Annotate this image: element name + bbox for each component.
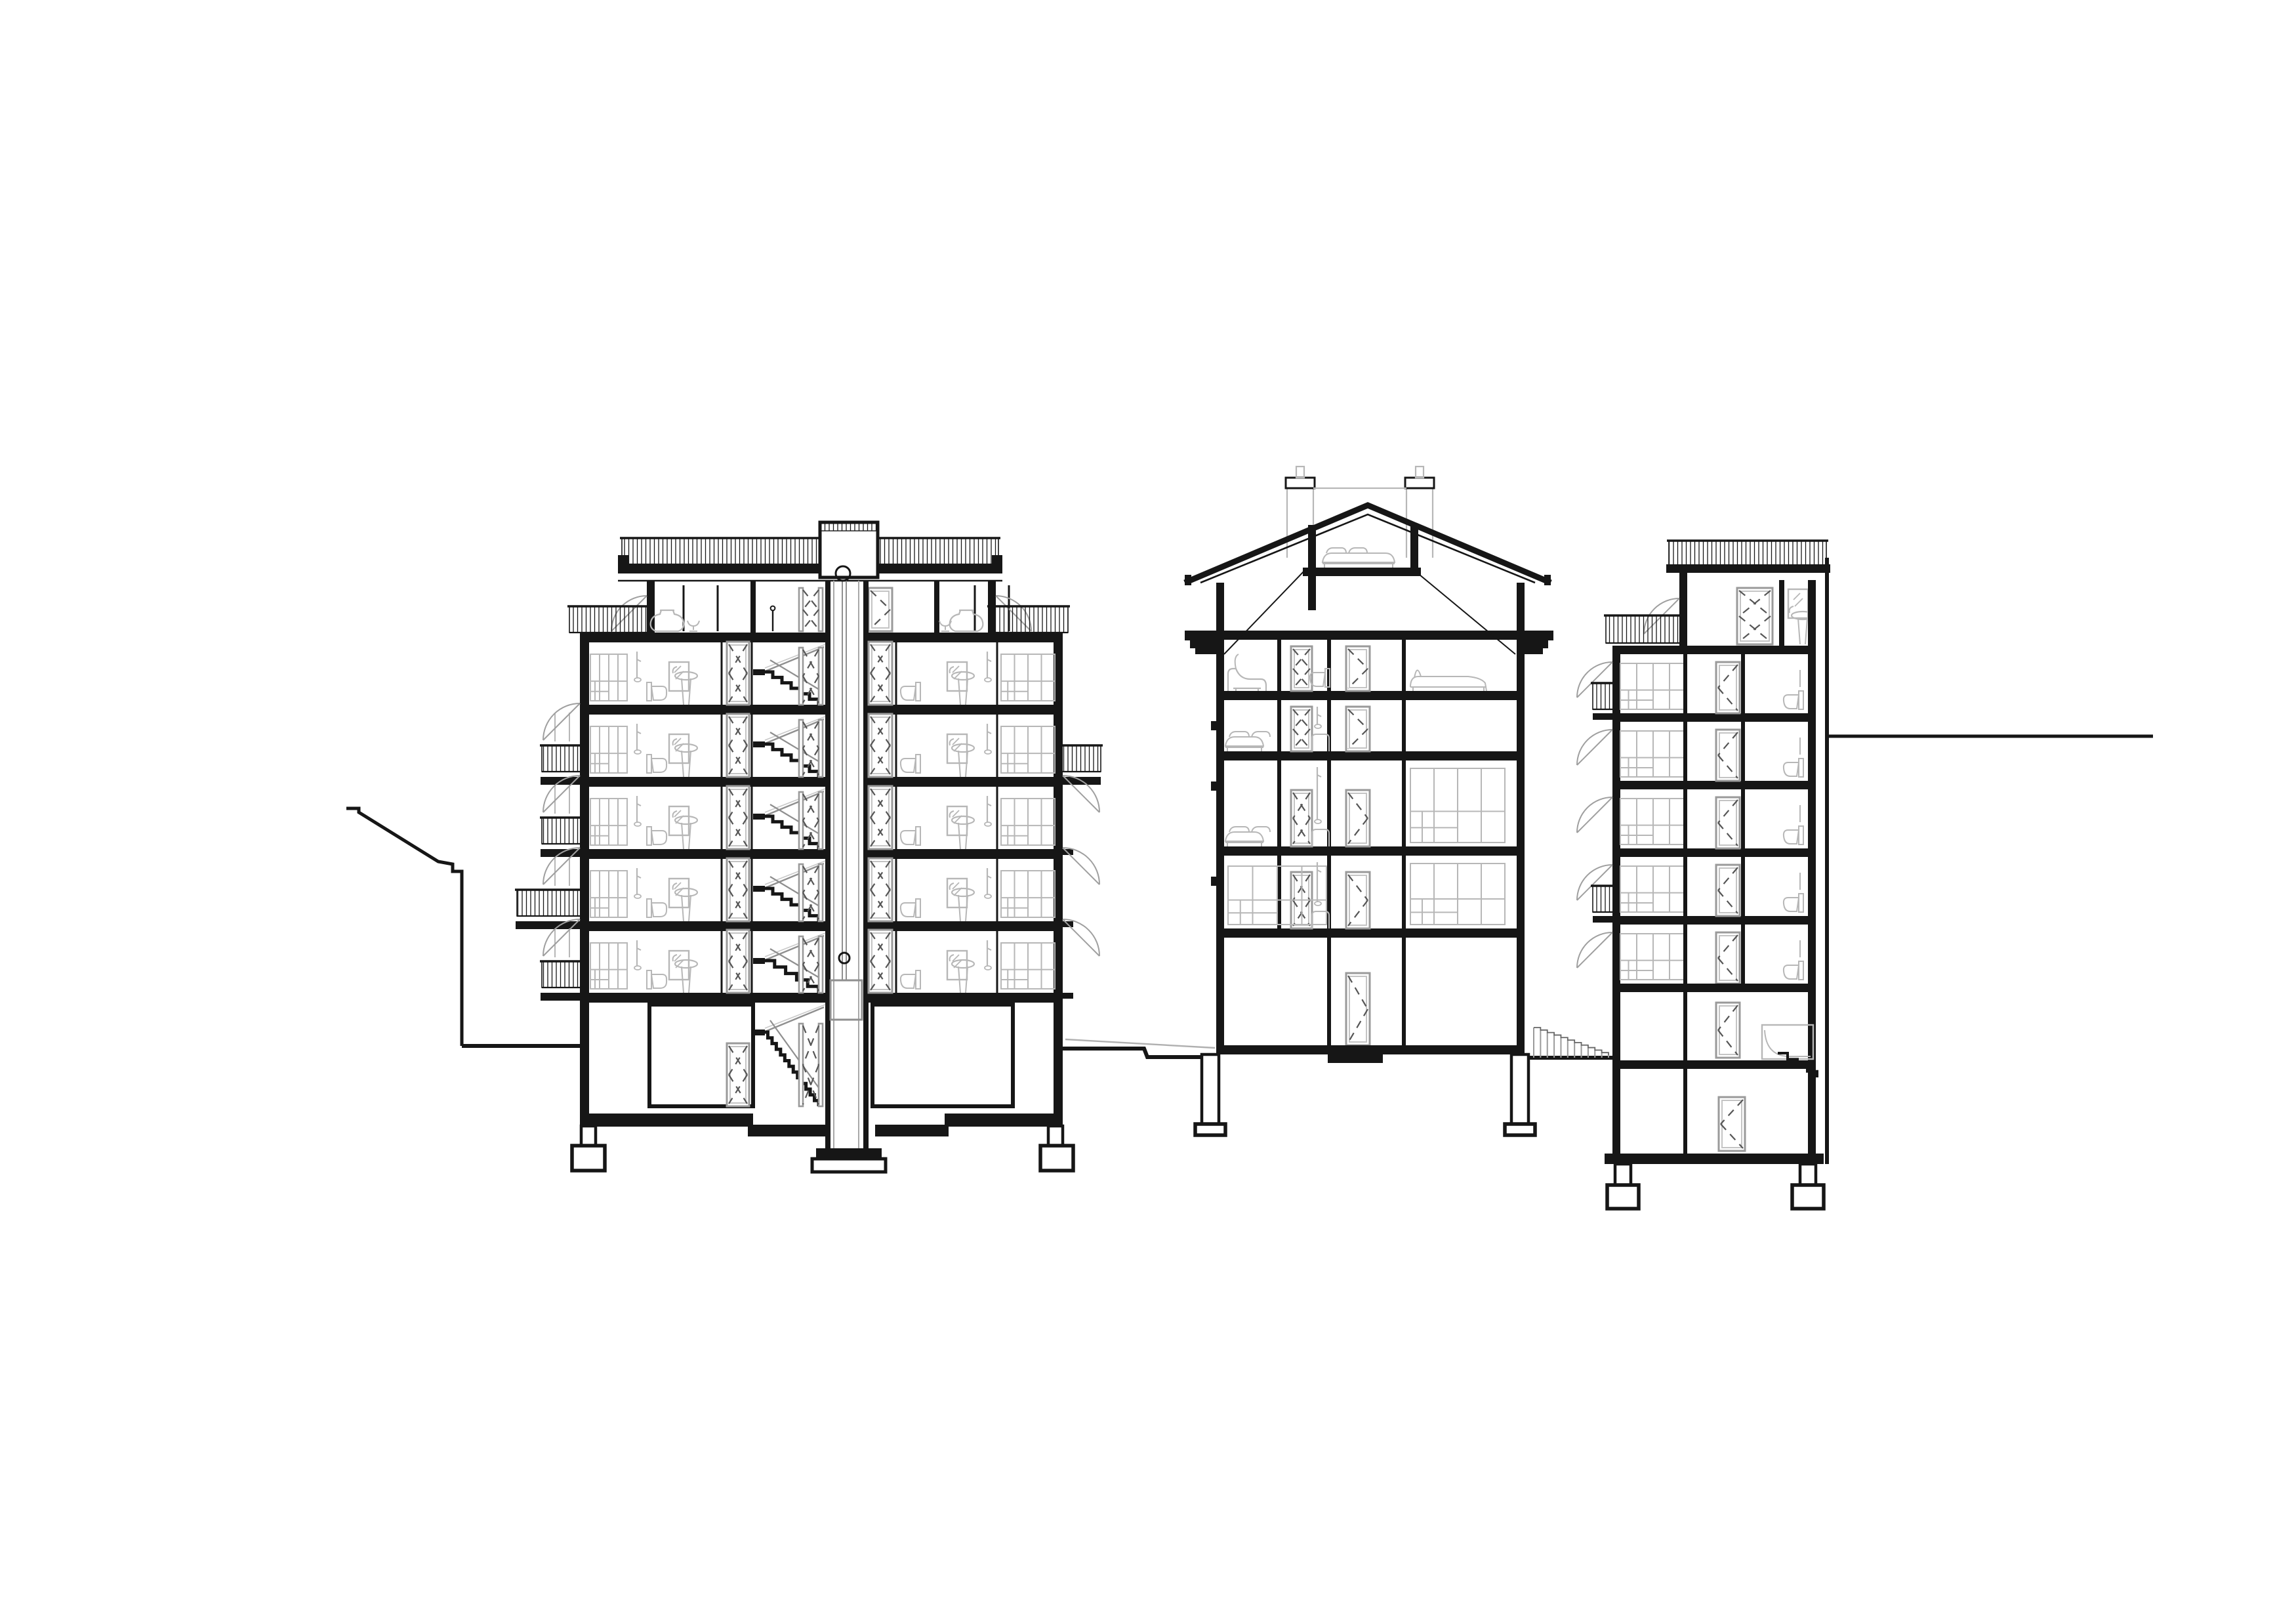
foundation-footing <box>572 1126 605 1171</box>
wardrobe-grid <box>1410 768 1505 843</box>
shower <box>1315 707 1321 728</box>
mirror <box>947 879 967 907</box>
wardrobe-grid <box>1001 726 1055 773</box>
apartment-door <box>869 930 892 993</box>
toilet <box>647 970 666 989</box>
armchair <box>1228 654 1266 691</box>
stair-flight <box>753 717 825 777</box>
wardrobe-grid <box>1001 654 1055 701</box>
wardrobe-grid <box>590 799 627 845</box>
wardrobe-grid <box>590 943 627 989</box>
apartment-floor <box>1577 925 1803 984</box>
shower <box>634 940 641 970</box>
balcony-railing <box>1591 683 1617 709</box>
mirror <box>947 806 967 835</box>
apartment-door <box>869 714 892 777</box>
apartment-floor <box>1225 760 1505 846</box>
apartment-floor <box>1577 722 1803 781</box>
foundation-footing <box>1040 1126 1073 1171</box>
terrace-railing <box>987 606 1070 633</box>
pedestal-sink <box>673 739 697 777</box>
balcony-railing <box>540 961 584 988</box>
apartment-door <box>869 642 892 705</box>
foundation-footing <box>1792 1164 1824 1209</box>
toilet <box>647 827 666 845</box>
architectural-section-svg <box>0 0 2296 1624</box>
hall-door <box>1346 872 1370 928</box>
bed <box>1322 548 1395 568</box>
apartment-floor <box>1224 568 1515 691</box>
stair-flight <box>753 933 825 993</box>
ground-floor <box>572 1005 1073 1171</box>
wardrobe-grid <box>590 871 627 917</box>
shower <box>634 796 641 826</box>
shower <box>985 796 991 826</box>
balcony-door-swing <box>1577 797 1612 833</box>
stair-flight <box>753 644 825 705</box>
left-building-section <box>515 522 1103 1172</box>
apartment-floor <box>1225 700 1406 751</box>
toilet <box>1784 894 1803 912</box>
roof-parapet <box>1666 541 1830 573</box>
section-drawing-canvas <box>0 0 2296 1624</box>
toilet <box>901 899 920 917</box>
mirror <box>1788 589 1808 618</box>
balcony-railing <box>515 890 584 916</box>
apartment-floor <box>590 930 1055 993</box>
balcony-left <box>1591 886 1617 923</box>
apartment-door <box>727 642 749 705</box>
vase-jug <box>651 610 684 631</box>
window-wardrobe-grid <box>1620 866 1686 912</box>
shower <box>985 652 991 682</box>
foundation-footing <box>1505 1054 1535 1135</box>
balcony-railing <box>1591 886 1617 912</box>
apartment-floor <box>590 714 1055 777</box>
stair-flight <box>753 789 825 849</box>
apartment-door <box>727 858 749 921</box>
hall-door <box>1716 932 1740 984</box>
window-wardrobe-grid <box>1620 731 1686 777</box>
entry-door <box>1346 973 1370 1045</box>
balcony-door-swing <box>1577 730 1612 765</box>
exterior-wall <box>1216 583 1224 1045</box>
toilet <box>901 755 920 773</box>
penthouse-door <box>869 588 892 631</box>
apartment-floor <box>590 786 1055 849</box>
wardrobe-grid <box>1410 864 1505 925</box>
toilet <box>901 827 920 845</box>
parapet-hatch <box>1667 541 1828 566</box>
floor-slabs <box>1612 646 1808 925</box>
cornice <box>1185 631 1216 654</box>
balcony-left <box>540 919 585 1001</box>
exterior-wall <box>1808 580 1816 1164</box>
bed <box>1225 732 1270 751</box>
bath-door <box>1291 790 1312 846</box>
wardrobe-grid <box>590 726 627 773</box>
apartment-door <box>727 786 749 849</box>
wardrobe-grid <box>1001 799 1055 845</box>
garden-level <box>1612 984 1817 1077</box>
hall-door <box>1346 707 1370 751</box>
foundation-footing <box>1607 1164 1639 1209</box>
basement-door <box>1719 1097 1745 1151</box>
elevator-cab <box>830 980 862 1020</box>
penthouse <box>611 581 1031 633</box>
lift-door-swing <box>799 588 823 631</box>
bath-door <box>1291 707 1312 751</box>
shower <box>985 940 991 970</box>
apartment-floor <box>1228 856 1505 928</box>
basement <box>1605 1069 1824 1209</box>
chimney-right <box>1405 467 1434 558</box>
hall-door <box>1346 646 1370 691</box>
hall-door <box>1716 730 1740 781</box>
apartment-door <box>869 858 892 921</box>
lift-door-swing <box>799 936 823 993</box>
garden-door <box>1716 1003 1740 1058</box>
shower <box>1315 767 1321 823</box>
balcony-left <box>515 848 585 929</box>
apartment-floor <box>590 858 1055 921</box>
bed <box>1225 827 1270 846</box>
terrace-railing <box>567 606 650 633</box>
toilet <box>901 682 920 701</box>
wardrobe-grid <box>1001 943 1055 989</box>
middle-building-section <box>1185 467 1553 1135</box>
balcony-door-swing <box>1063 919 1099 956</box>
mirror <box>947 662 967 691</box>
roof-parapet <box>618 538 1002 581</box>
mirror <box>669 734 689 763</box>
shower <box>985 724 991 754</box>
balcony-door-swing <box>543 703 580 740</box>
pedestal-sink <box>673 883 697 921</box>
toilet <box>1784 691 1803 709</box>
right-building-section <box>1577 541 1830 1209</box>
hall-door <box>1716 797 1740 848</box>
balcony-railing <box>540 745 584 772</box>
sofa <box>1410 670 1486 691</box>
exterior-skin <box>1825 558 1829 1164</box>
foundation-footing <box>1195 1054 1225 1135</box>
balcony-left <box>1591 683 1617 720</box>
hall-door <box>1346 790 1370 846</box>
shower <box>634 868 641 898</box>
exterior-wall <box>580 633 589 1114</box>
mirror <box>669 879 689 907</box>
pedestal-sink <box>673 811 697 849</box>
toilet <box>1784 961 1803 980</box>
balcony-railing <box>540 818 584 844</box>
pedestal-sink <box>673 955 697 993</box>
toilet <box>901 970 920 989</box>
toilet <box>647 755 666 773</box>
hall-door <box>1716 865 1740 916</box>
shower <box>634 724 641 754</box>
apartment-door <box>727 714 749 777</box>
mirror <box>669 806 689 835</box>
apartment-door <box>869 786 892 849</box>
mirror <box>947 734 967 763</box>
entry-door <box>727 1043 749 1106</box>
parapet-hatch <box>620 538 1000 564</box>
exterior-stairs <box>1534 1028 1609 1058</box>
stair-flight <box>753 861 825 921</box>
apartment-floor <box>1577 789 1803 848</box>
wardrobe-grid <box>1001 871 1055 917</box>
toilet <box>647 899 666 917</box>
shower <box>1315 862 1321 906</box>
apartment-door <box>727 930 749 993</box>
bath-door <box>1291 646 1312 691</box>
top-floor-door <box>1737 588 1773 644</box>
window-wardrobe-grid <box>1620 934 1686 980</box>
balcony-door-swing <box>1063 848 1099 885</box>
vase-jug <box>950 610 983 631</box>
ground-floor <box>1195 938 1535 1135</box>
vase-cup <box>687 621 699 631</box>
toilet <box>647 682 666 701</box>
toilet <box>1784 826 1803 844</box>
hall-door <box>1716 662 1740 713</box>
mirror <box>669 662 689 691</box>
shower <box>634 652 641 682</box>
cornice <box>1522 631 1553 654</box>
balcony-left <box>540 776 585 857</box>
apartment-floor <box>590 642 1055 705</box>
mirror <box>947 951 967 980</box>
balcony-door-swing <box>1577 932 1612 968</box>
terrace-railing <box>1604 615 1683 643</box>
window-wardrobe-grid <box>1620 799 1686 844</box>
mirror <box>669 951 689 980</box>
balcony-left <box>540 703 585 785</box>
attic-bedroom <box>1303 525 1421 610</box>
wardrobe-grid <box>590 654 627 701</box>
toilet <box>1784 759 1803 777</box>
shower <box>985 868 991 898</box>
window-wardrobe-grid <box>1620 663 1686 709</box>
balcony-railing <box>1058 745 1103 772</box>
pedestal-sink <box>673 667 697 705</box>
